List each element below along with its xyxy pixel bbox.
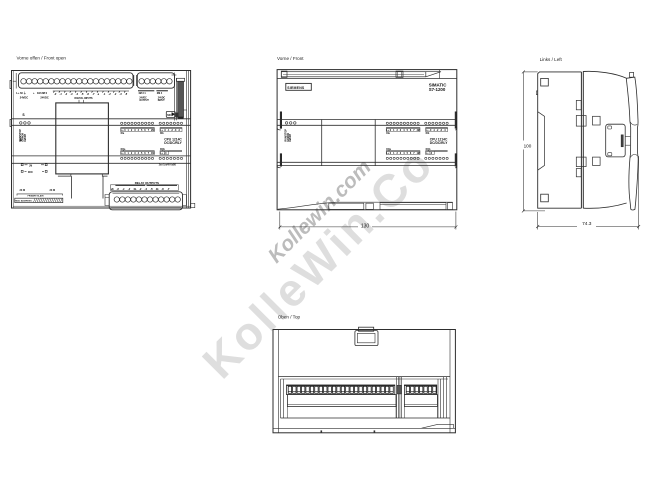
svg-text:1M: 1M: [417, 152, 420, 155]
svg-text:1M 2M 0: 1M 2M 0: [37, 91, 48, 95]
svg-text:Vorne offen / Front open: Vorne offen / Front open: [17, 56, 67, 61]
svg-text:S: S: [20, 138, 22, 142]
svg-text:Links / Left: Links / Left: [540, 57, 563, 62]
svg-text:2M: 2M: [417, 129, 420, 132]
svg-text:1M: 1M: [151, 152, 154, 155]
svg-text:.4: .4: [144, 187, 147, 191]
svg-text:23 M: 23 M: [50, 189, 56, 192]
svg-text:SIEMENS: SIEMENS: [287, 86, 305, 90]
svg-text:2L: 2L: [110, 187, 115, 191]
svg-text:24VDC: 24VDC: [20, 96, 28, 100]
svg-text:DC/DC/RLY: DC/DC/RLY: [430, 141, 448, 145]
svg-text:3M 4: 3M 4: [157, 92, 163, 95]
svg-text:4M 3 1: 4M 3 1: [138, 92, 146, 95]
svg-text:DIGITAL INPUTS: DIGITAL INPUTS: [75, 97, 94, 100]
svg-text:2M: 2M: [151, 129, 154, 132]
svg-text:DIb: DIb: [426, 133, 430, 135]
svg-text:DIb: DIb: [160, 133, 164, 135]
svg-text:4L: 4L: [155, 187, 160, 191]
svg-text:MAINT: MAINT: [289, 133, 292, 141]
svg-text:3L: 3L: [133, 187, 137, 191]
svg-text:Oben / Top: Oben / Top: [278, 314, 301, 319]
svg-text:74.3: 74.3: [582, 221, 592, 227]
svg-text:MAINT: MAINT: [24, 133, 27, 141]
svg-text:24VDC: 24VDC: [40, 96, 48, 100]
svg-text:S7-1200: S7-1200: [429, 87, 446, 92]
svg-text:MC: MC: [167, 113, 171, 117]
svg-text:24VDC: 24VDC: [139, 96, 147, 99]
svg-text:L+ M ⏚: L+ M ⏚: [16, 91, 26, 95]
svg-text:MAC ADDRESS:: MAC ADDRESS:: [15, 200, 32, 203]
svg-text:RELAY OUTPUTS: RELAY OUTPUTS: [135, 181, 159, 185]
svg-text:100: 100: [524, 144, 532, 149]
svg-text:JM: JM: [29, 165, 32, 167]
svg-text:130: 130: [361, 223, 370, 229]
svg-text:23 M: 23 M: [20, 189, 26, 192]
svg-text:INPUT: INPUT: [158, 100, 165, 102]
svg-text:Vorne / Front: Vorne / Front: [277, 56, 304, 61]
svg-text:OUTPUT: OUTPUT: [139, 100, 149, 102]
svg-text:DC/DC/RLY: DC/DC/RLY: [164, 141, 182, 145]
svg-text:2xx-1xx40-0xB0: 2xx-1xx40-0xB0: [159, 164, 177, 167]
svg-text:PRIMARY SLAVE: PRIMARY SLAVE: [28, 195, 45, 198]
svg-text:IN/O: IN/O: [28, 172, 33, 174]
svg-text:24VDC: 24VDC: [158, 96, 166, 99]
svg-text:.2: .2: [128, 187, 131, 191]
